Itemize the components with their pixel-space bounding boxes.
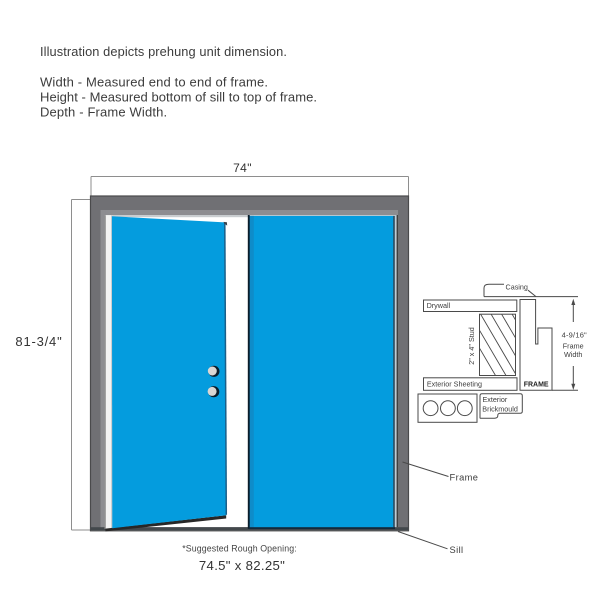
svg-text:4-9/16": 4-9/16" — [562, 331, 587, 340]
svg-text:Height - Measured bottom of si: Height - Measured bottom of sill to top … — [40, 90, 317, 105]
svg-text:Width: Width — [564, 350, 582, 359]
svg-text:Exterior Sheeting: Exterior Sheeting — [427, 380, 482, 389]
svg-text:Depth - Frame Width.: Depth - Frame Width. — [40, 105, 167, 120]
svg-text:FRAME: FRAME — [524, 382, 549, 389]
svg-text:Exterior: Exterior — [483, 395, 508, 404]
svg-text:Frame: Frame — [450, 473, 479, 483]
svg-text:Illustration depicts prehung u: Illustration depicts prehung unit dimens… — [40, 44, 287, 59]
svg-text:Drywall: Drywall — [427, 301, 451, 310]
svg-text:Casing: Casing — [506, 283, 528, 292]
svg-text:Sill: Sill — [450, 545, 464, 555]
svg-text:2" x 4" Stud: 2" x 4" Stud — [467, 327, 476, 364]
svg-text:Width - Measured end to end of: Width - Measured end to end of frame. — [40, 75, 268, 90]
svg-text:81-3/4": 81-3/4" — [15, 334, 62, 349]
svg-text:*Suggested Rough Opening:: *Suggested Rough Opening: — [182, 544, 297, 554]
svg-text:74.5" x 82.25": 74.5" x 82.25" — [199, 558, 285, 573]
svg-text:Brickmould: Brickmould — [482, 404, 518, 413]
svg-text:74": 74" — [233, 161, 252, 175]
